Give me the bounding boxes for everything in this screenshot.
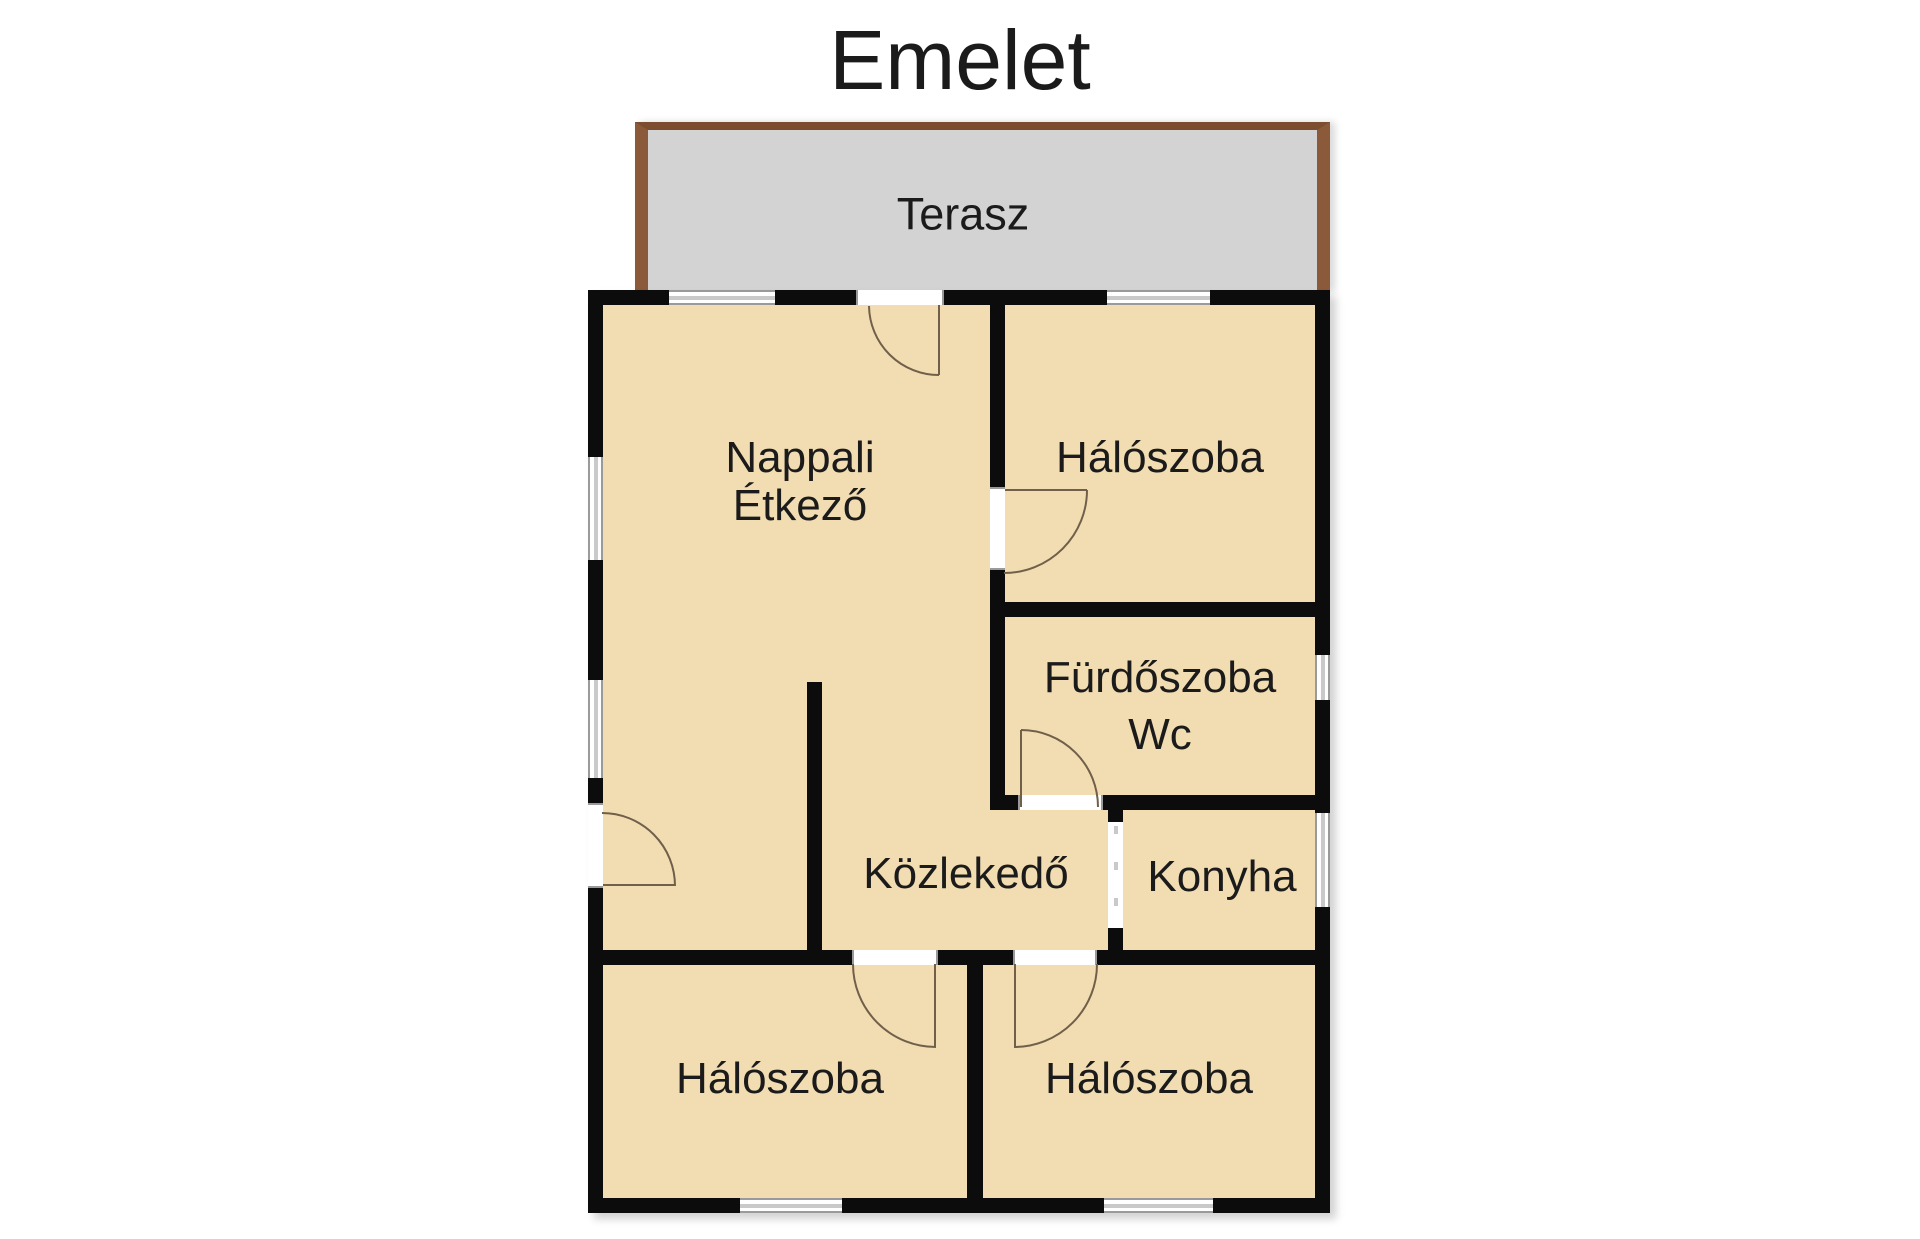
window-symbol [588,680,603,778]
wall-segment [990,305,1005,487]
wall-segment [588,950,852,965]
room-label-living-line2: Étkező [725,482,874,530]
door-symbol [1013,950,1097,965]
wall-segment [990,795,1018,810]
door-symbol [1018,795,1103,810]
window-symbol [1104,1198,1213,1213]
room-label-living-line1: Nappali [725,434,874,482]
room-label-living: Nappali Étkező [725,434,874,530]
window-symbol [1315,813,1330,907]
wall-segment [588,888,603,1213]
door-symbol [856,290,944,305]
wall-segment [1103,795,1315,810]
wall-segment [588,290,603,457]
wall-segment [588,1198,740,1213]
window-symbol [1107,290,1210,305]
door-symbol [990,487,1005,570]
wall-segment [990,570,1005,810]
wall-segment [1210,290,1330,305]
wall-segment [1108,810,1123,822]
room-label-bedroom-left: Hálószoba [676,1055,884,1103]
wall-segment [1097,950,1315,965]
wall-segment [1315,290,1330,655]
room-label-bathroom-line1: Fürdőszoba [1044,649,1276,706]
terrace-label: Terasz [897,189,1030,238]
window-symbol [588,457,603,560]
room-label-bathroom-line2: Wc [1044,706,1276,763]
room-label-bedroom-right: Hálószoba [1045,1055,1253,1103]
wall-segment [944,290,1107,305]
wall-segment [967,965,983,1198]
plan-title: Emelet [829,16,1090,104]
wall-segment [588,778,603,803]
wall-segment [1005,602,1315,617]
window-symbol [669,290,775,305]
wall-segment [1213,1198,1330,1213]
room-label-bedroom-top: Hálószoba [1056,434,1264,482]
wall-segment [1315,907,1330,1213]
passage-opening-symbol [1108,822,1123,928]
wall-segment [807,682,822,965]
floor-plan: Emelet [0,0,1920,1239]
room-label-hallway: Közlekedő [863,850,1068,898]
wall-segment [938,950,1013,965]
wall-segment [842,1198,1104,1213]
wall-segment [588,560,603,680]
room-label-bathroom: Fürdőszoba Wc [1044,649,1276,763]
room-label-kitchen: Konyha [1147,853,1296,901]
door-symbol [852,950,938,965]
wall-segment [775,290,856,305]
wall-segment [1315,700,1330,813]
window-symbol [740,1198,842,1213]
window-symbol [1315,655,1330,700]
door-symbol [588,803,603,888]
